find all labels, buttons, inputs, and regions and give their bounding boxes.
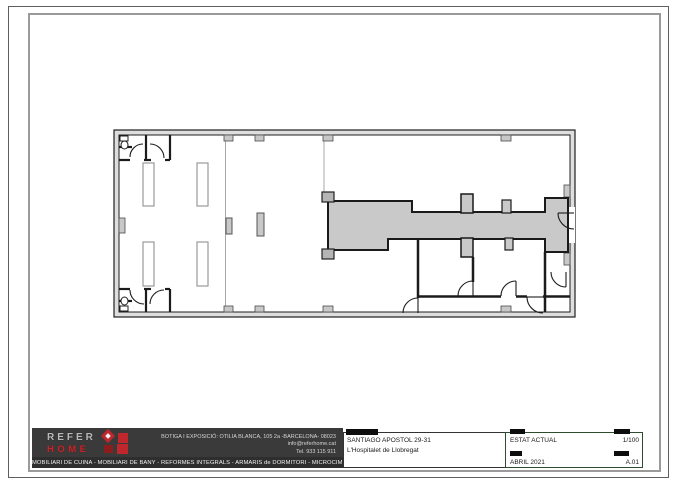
logo-text-refer: REFER	[47, 432, 96, 443]
field-label-bar	[510, 451, 522, 456]
store-email: info@referhome.cat	[161, 441, 336, 448]
field-label-bar	[346, 429, 378, 435]
company-contact: BOTIGA I EXPOSICIÓ: OTILIA BLANCA, 105 2…	[161, 434, 336, 456]
logo-text-home: HOME	[47, 444, 90, 455]
corner-stub	[322, 192, 334, 202]
logo-square-icon	[104, 445, 113, 453]
field-label-bar	[510, 429, 525, 434]
corridor-tab	[502, 200, 511, 213]
toilet-icon	[120, 136, 128, 149]
plan-status: ESTAT ACTUAL	[510, 437, 557, 444]
field-label-bar	[614, 429, 630, 434]
store-phone: Tel. 933 115 911	[161, 449, 336, 456]
plan-scale: 1/100	[595, 437, 639, 444]
entry-wall-opening	[569, 207, 575, 243]
corridor-column-stub	[461, 238, 473, 257]
plan-date: ABRIL 2021	[510, 459, 545, 466]
services-line: MOBILIARI DE CUINA - MOBILIARI DE BANY -…	[32, 460, 343, 466]
corridor-column-stub	[461, 194, 473, 213]
logo-square-icon	[118, 433, 128, 443]
sheet-number: A.01	[595, 459, 639, 466]
field-label-bar	[614, 451, 629, 456]
project-street: SANTIAGO APOSTOL 29-31	[347, 437, 431, 444]
company-logo: REFER HOME	[32, 428, 162, 458]
corridor-tab	[505, 238, 513, 250]
logo-square-icon	[117, 444, 128, 454]
project-city: L'Hospitalet de Llobregat	[347, 447, 419, 454]
corner-stub	[322, 249, 334, 259]
title-block-company-panel: REFER HOME BOTIGA I EXPOSICIÓ: OTILIA BL…	[32, 428, 343, 468]
floor-plan	[0, 0, 676, 483]
store-address: BOTIGA I EXPOSICIÓ: OTILIA BLANCA, 105 2…	[161, 434, 336, 441]
logo-diamond-icon	[101, 429, 115, 443]
